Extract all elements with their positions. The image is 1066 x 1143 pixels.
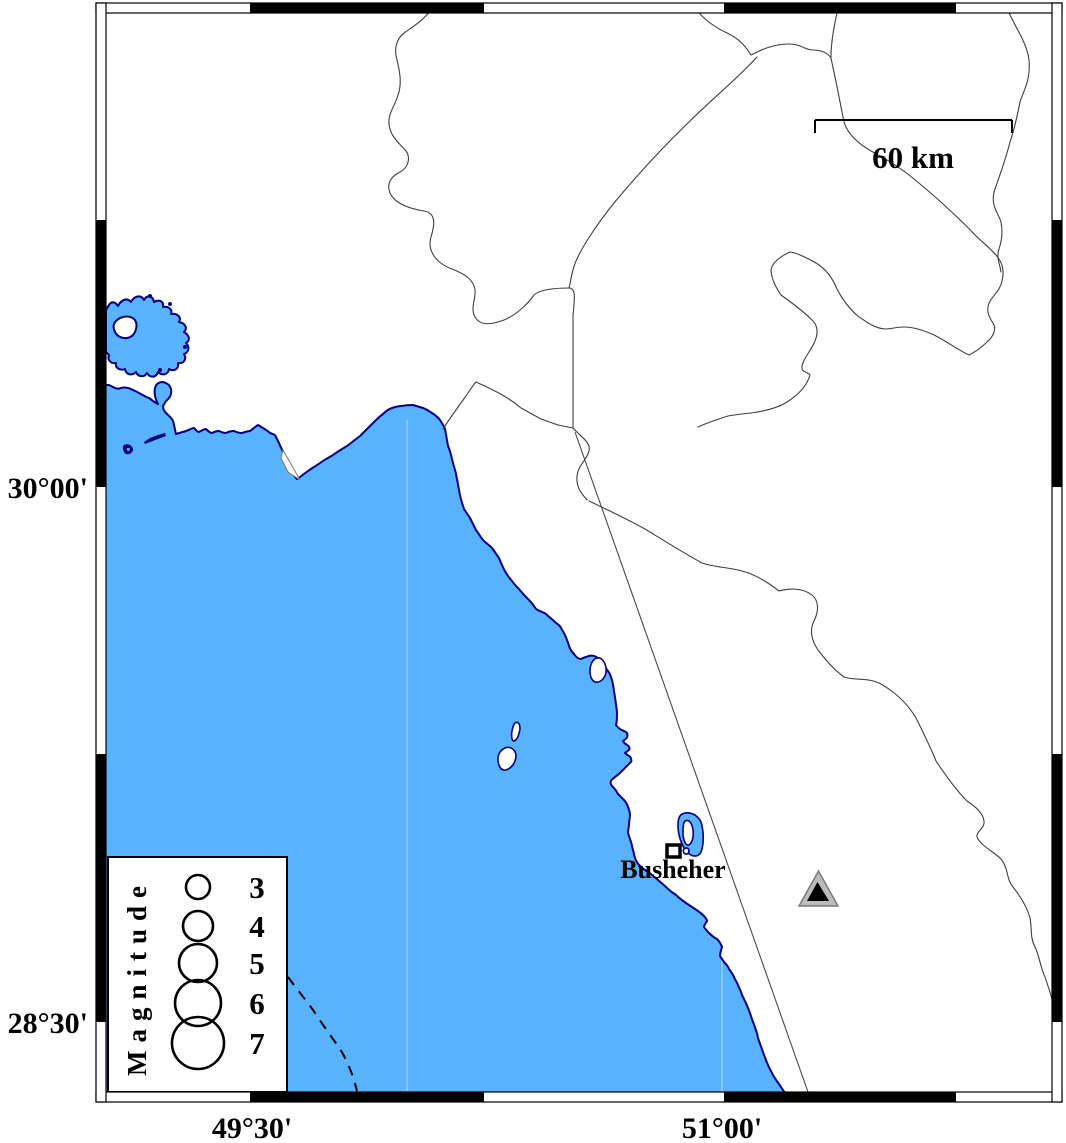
legend-value-5: 5 [249,946,265,981]
lagoon-islet [683,848,689,854]
legend-title: Magnitude [122,878,152,1076]
frame-tick-segment [1052,220,1062,487]
lon-label-49-30: 49°30' [212,1112,292,1143]
city-label: Busheher [620,855,725,884]
frame-tick-segment [724,1092,956,1102]
lake-speck [148,294,152,298]
lat-label-30-00: 30°00' [8,472,88,505]
legend-value-7: 7 [249,1026,265,1061]
scale-bar-label: 60 km [872,140,954,175]
lake-speck [158,368,162,372]
frame-tick-segment [250,3,484,13]
map-canvas: 60 km Busheher Magnitude 3 4 5 6 7 [0,0,1066,1143]
lake-speck [183,345,187,349]
lon-label-51-00: 51°00' [682,1112,762,1143]
frame-tick-segment [96,220,106,487]
island-lagoon [590,658,606,682]
legend-box: Magnitude 3 4 5 6 7 [108,857,287,1092]
legend-value-3: 3 [249,870,265,905]
frame-tick-segment [250,1092,484,1102]
frame-tick-segment [1052,754,1062,1022]
lagoon-island [683,820,693,845]
frame-tick-segment [96,754,106,1022]
lat-label-28-30: 28°30' [8,1007,88,1040]
map-page: 60 km Busheher Magnitude 3 4 5 6 7 [0,0,1066,1143]
frame-tick-segment [724,3,956,13]
lake-speck [168,302,172,306]
legend-value-6: 6 [249,986,265,1021]
legend-value-4: 4 [249,909,265,944]
